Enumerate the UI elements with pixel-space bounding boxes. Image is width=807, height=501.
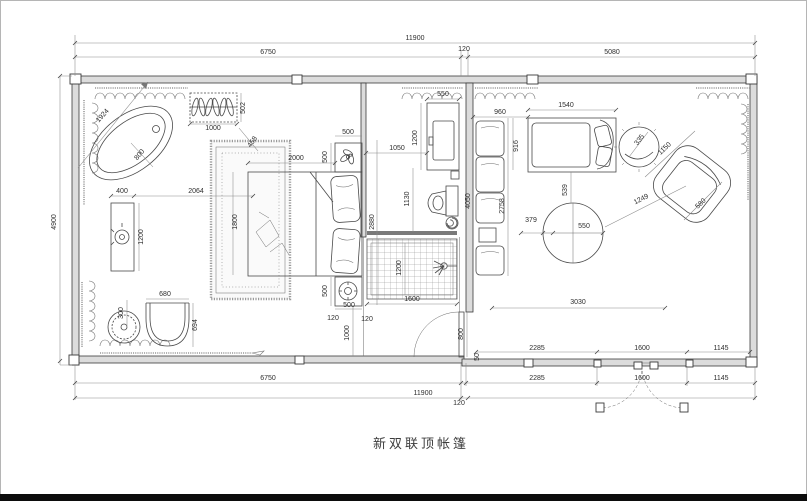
dim-label: 539 [562, 184, 569, 196]
dim-label: 1249 [633, 193, 650, 206]
dim-label: 1540 [558, 102, 574, 109]
shower-area [367, 231, 457, 299]
tub-faucet-icon [153, 126, 160, 133]
dim-label: 500 [322, 151, 329, 163]
dim-label: 580 [694, 197, 707, 210]
dim-label: 1200 [412, 130, 419, 146]
dim-label: 2000 [288, 155, 304, 162]
pillow [330, 228, 360, 274]
door-swing-icon [414, 312, 459, 357]
floor-plan-page: 1190067501205080490022851600114567502285… [0, 0, 807, 501]
side-tray [479, 228, 496, 242]
dim-label: 1800 [232, 214, 239, 230]
dim-label: 379 [525, 217, 537, 224]
dim-label: 1200 [138, 229, 145, 245]
dim-label: 2285 [529, 375, 545, 382]
nightstand-top [335, 143, 362, 172]
dim-label: 960 [494, 109, 506, 116]
dim-label: 800 [133, 148, 146, 162]
dim-label: 1145 [713, 345, 728, 352]
bottom-edge-bar [0, 494, 807, 501]
dim-label: 120 [453, 400, 465, 407]
floor-plan-drawing: 1190067501205080490022851600114567502285… [0, 0, 807, 501]
dim-label: 550 [437, 91, 449, 98]
dim-label: 120 [327, 315, 339, 322]
pillow [595, 146, 612, 167]
dim-label: 120 [361, 316, 373, 323]
dimension-labels: 1190067501205080490022851600114567502285… [51, 35, 729, 407]
dim-label: 1145 [713, 375, 728, 382]
entry-double-door [596, 362, 688, 412]
dim-label: 4050 [465, 193, 472, 209]
dim-label: 1000 [344, 325, 351, 341]
toilet-seat [146, 303, 189, 346]
dim-label: 550 [578, 223, 590, 230]
dim-label: 6750 [260, 375, 276, 382]
wall-switch-icon [451, 171, 459, 179]
dim-label: 500 [343, 302, 355, 309]
dim-label: 5080 [604, 49, 620, 56]
dim-label: 1600 [634, 345, 650, 352]
pillow [330, 175, 360, 223]
dim-label: 1600 [634, 375, 650, 382]
daybed [528, 118, 616, 172]
modular-sofa [476, 121, 504, 275]
dim-label: 2880 [369, 214, 376, 230]
double-door-icon [600, 366, 642, 408]
dim-label: 694 [192, 319, 199, 331]
dim-label: 300 [118, 307, 125, 319]
dim-label: 500 [342, 129, 354, 136]
shower-screen [367, 231, 457, 235]
dim-label: 500 [322, 285, 329, 297]
dim-label: 2285 [529, 345, 545, 352]
dim-label: 3030 [570, 299, 586, 306]
dim-label: 2758 [499, 198, 506, 214]
dim-label: 11900 [406, 35, 425, 42]
dim-label: 4900 [51, 214, 58, 230]
dim-label: 1050 [389, 145, 405, 152]
bathroom-vanity-cabinet [427, 103, 459, 170]
dim-label: 2064 [188, 188, 204, 195]
dim-label: 1000 [205, 125, 221, 132]
curtain-arrow-icon [252, 351, 264, 355]
round-table [543, 203, 603, 263]
dim-label: 680 [159, 291, 171, 298]
plant-icon [339, 148, 354, 164]
wash-basin-counter [111, 203, 134, 271]
bedroom-rug [211, 141, 290, 299]
toilet [428, 186, 458, 216]
curtain-scallops [82, 88, 750, 355]
dim-label: 6750 [260, 49, 276, 56]
dim-label: 1150 [657, 141, 673, 156]
dim-label: 400 [116, 188, 128, 195]
dim-label: 335 [633, 133, 646, 147]
round-side-chair [614, 122, 664, 172]
pillow [594, 125, 612, 148]
bedroom-door [414, 312, 464, 357]
dim-label: 11900 [414, 390, 433, 397]
dim-label: 50 [474, 353, 481, 361]
dim-label: 916 [513, 140, 520, 152]
floor-drain-icon [446, 217, 458, 229]
faucet-icon [429, 137, 433, 145]
clothes-rack [190, 93, 237, 122]
drawing-caption: 新双联顶帐篷 [373, 436, 469, 451]
dim-label: 1600 [404, 296, 420, 303]
dim-label: 502 [240, 102, 247, 114]
dim-label: 1200 [396, 260, 403, 276]
dim-label: 800 [458, 328, 465, 340]
tray-icon [339, 282, 357, 300]
dim-label: 120 [458, 46, 470, 53]
dim-label: 1130 [404, 191, 411, 206]
